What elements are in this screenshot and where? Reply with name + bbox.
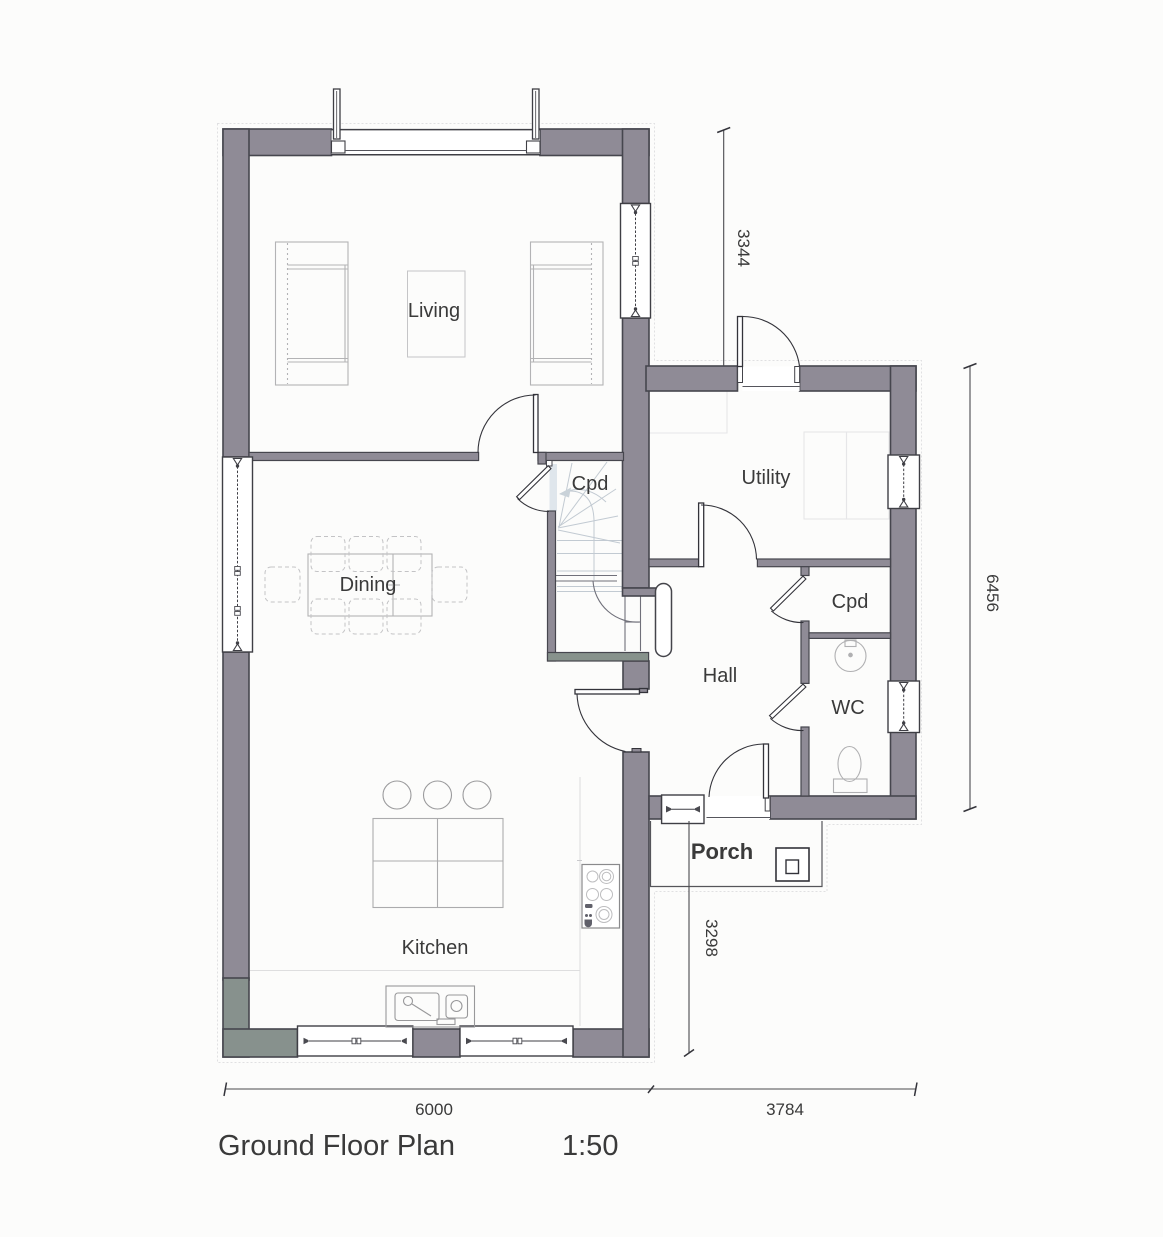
svg-text:Utility: Utility — [742, 467, 791, 489]
svg-text:3298: 3298 — [702, 919, 721, 957]
svg-text:1:50: 1:50 — [562, 1130, 618, 1162]
svg-text:6000: 6000 — [415, 1100, 453, 1119]
svg-text:WC: WC — [831, 697, 864, 719]
svg-text:3784: 3784 — [766, 1100, 804, 1119]
svg-text:Ground Floor Plan: Ground Floor Plan — [218, 1130, 455, 1162]
svg-text:3344: 3344 — [734, 229, 753, 267]
svg-text:Cpd: Cpd — [572, 473, 609, 495]
svg-text:Living: Living — [408, 300, 460, 322]
svg-text:Cpd: Cpd — [832, 591, 869, 613]
svg-text:Kitchen: Kitchen — [402, 937, 469, 959]
svg-text:Hall: Hall — [703, 665, 737, 687]
svg-text:Dining: Dining — [340, 574, 397, 596]
svg-text:Porch: Porch — [691, 839, 753, 864]
svg-text:6456: 6456 — [983, 574, 1002, 612]
